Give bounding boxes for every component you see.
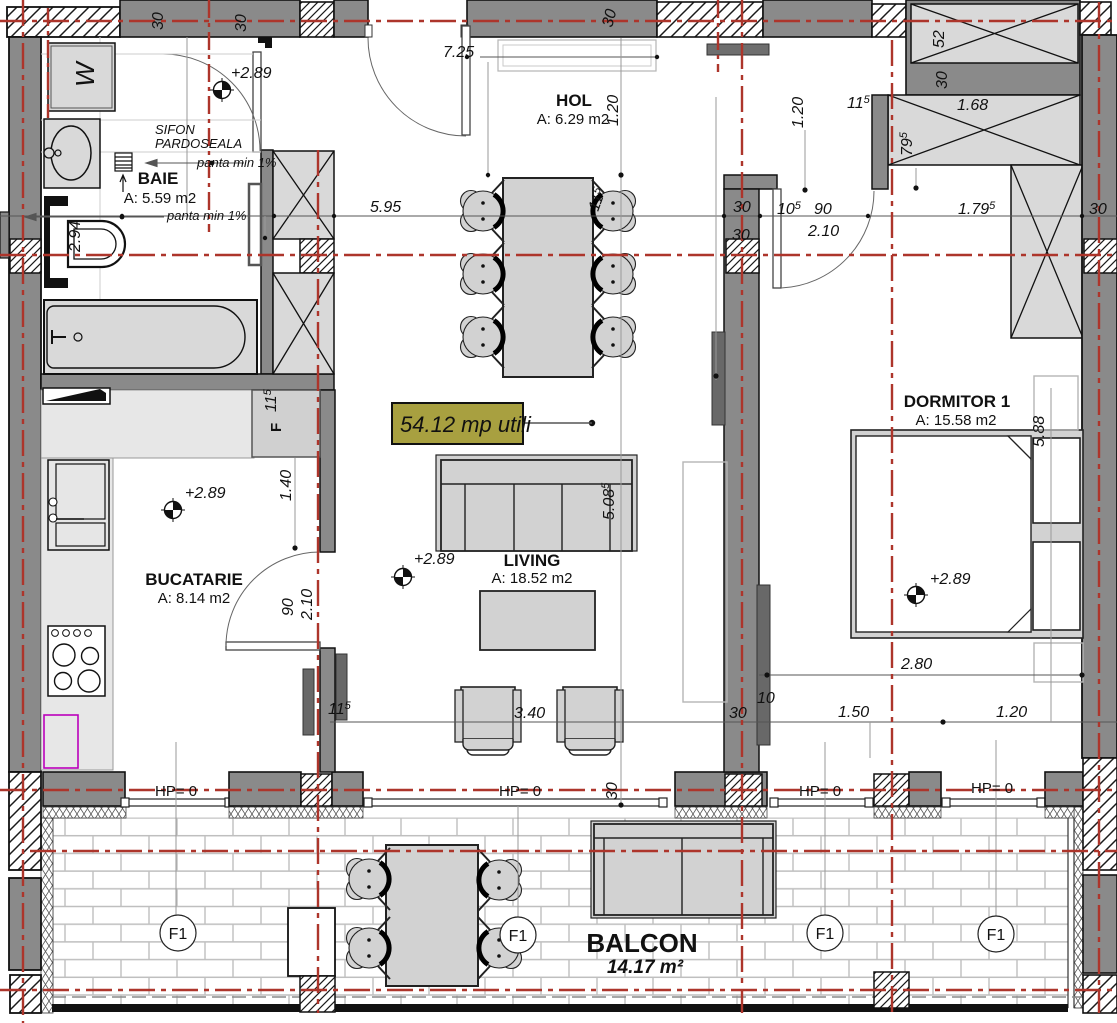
svg-text:52: 52 <box>931 30 948 48</box>
svg-text:30: 30 <box>1089 201 1107 218</box>
svg-text:1.40: 1.40 <box>278 470 295 501</box>
svg-text:3.40: 3.40 <box>514 705 545 722</box>
svg-text:BAIE: BAIE <box>138 169 179 188</box>
svg-text:30: 30 <box>729 705 747 722</box>
svg-text:DORMITOR 1: DORMITOR 1 <box>904 392 1010 411</box>
svg-text:HP= 0: HP= 0 <box>499 783 541 800</box>
svg-text:A: 18.52 m2: A: 18.52 m2 <box>492 570 573 587</box>
svg-text:2.80: 2.80 <box>900 656 932 673</box>
svg-text:30: 30 <box>934 71 951 89</box>
svg-text:F1: F1 <box>987 927 1006 944</box>
svg-text:1.20: 1.20 <box>790 97 807 128</box>
svg-text:A: 15.58 m2: A: 15.58 m2 <box>916 412 997 429</box>
svg-text:30: 30 <box>150 12 167 30</box>
svg-text:+2.89: +2.89 <box>231 65 272 82</box>
svg-text:1.20: 1.20 <box>996 704 1027 721</box>
svg-text:10: 10 <box>757 690 775 707</box>
svg-text:30: 30 <box>604 782 621 800</box>
svg-text:+2.89: +2.89 <box>185 485 226 502</box>
svg-text:14.17 m²: 14.17 m² <box>607 957 684 978</box>
svg-text:BALCON: BALCON <box>586 928 697 958</box>
svg-text:A: 5.59 m2: A: 5.59 m2 <box>124 190 197 207</box>
svg-text:2.94: 2.94 <box>67 221 84 253</box>
svg-text:panta min 1%: panta min 1% <box>166 208 247 223</box>
svg-text:BUCATARIE: BUCATARIE <box>145 570 243 589</box>
svg-text:+2.89: +2.89 <box>414 551 455 568</box>
svg-text:5.88: 5.88 <box>1031 416 1048 447</box>
svg-text:HP= 0: HP= 0 <box>971 780 1013 797</box>
svg-text:LIVING: LIVING <box>504 551 561 570</box>
svg-text:30: 30 <box>733 199 751 216</box>
svg-text:PARDOSEALA: PARDOSEALA <box>155 136 242 151</box>
svg-text:1.20: 1.20 <box>605 95 622 126</box>
svg-text:F1: F1 <box>509 928 528 945</box>
svg-text:1.50: 1.50 <box>838 704 869 721</box>
svg-text:F: F <box>268 423 285 432</box>
svg-text:1.68: 1.68 <box>957 97 988 114</box>
svg-text:+2.89: +2.89 <box>930 571 971 588</box>
svg-text:HOL: HOL <box>556 91 592 110</box>
svg-text:2.10: 2.10 <box>299 589 316 621</box>
svg-text:SIFON: SIFON <box>155 122 195 137</box>
svg-text:90: 90 <box>280 598 297 616</box>
svg-text:54.12 mp utili: 54.12 mp utili <box>400 412 532 437</box>
svg-text:7.25: 7.25 <box>443 44 474 61</box>
svg-text:2.10: 2.10 <box>807 223 839 240</box>
svg-text:5.95: 5.95 <box>370 199 401 216</box>
svg-text:A: 8.14 m2: A: 8.14 m2 <box>158 590 231 607</box>
svg-text:HP= 0: HP= 0 <box>799 783 841 800</box>
svg-text:A: 6.29 m2: A: 6.29 m2 <box>537 111 610 128</box>
svg-text:panta min 1%: panta min 1% <box>196 155 277 170</box>
svg-text:HP= 0: HP= 0 <box>155 783 197 800</box>
svg-text:30: 30 <box>732 227 750 244</box>
svg-text:30: 30 <box>233 14 250 32</box>
svg-text:90: 90 <box>814 201 832 218</box>
svg-text:F1: F1 <box>816 926 835 943</box>
svg-text:W: W <box>70 60 100 87</box>
svg-text:F1: F1 <box>169 926 188 943</box>
